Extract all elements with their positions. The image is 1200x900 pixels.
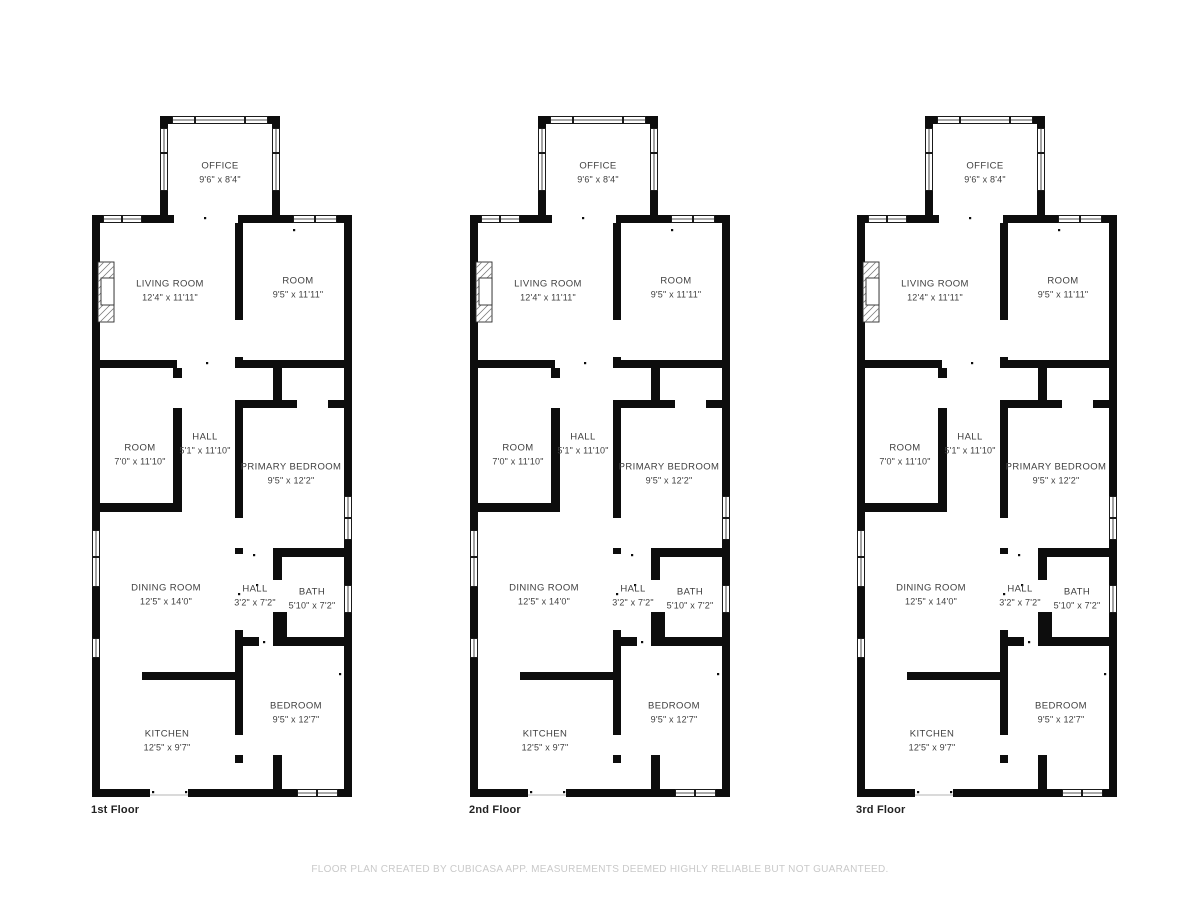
window-left-dining xyxy=(93,531,100,587)
room-name: BATH xyxy=(667,586,714,599)
window-top-left xyxy=(104,216,142,223)
window-office-right xyxy=(651,129,658,191)
window-office-right xyxy=(273,129,280,191)
window-bottom-bedroom xyxy=(1063,790,1103,797)
room-dims: 5'10" x 7'2" xyxy=(289,600,336,613)
room-label-hall-small: HALL 3'2" x 7'2" xyxy=(234,583,276,610)
window-right-primary xyxy=(1110,497,1117,540)
room-dims: 7'0" x 11'10" xyxy=(492,456,543,469)
room-dims: 12'4" x 11'11" xyxy=(136,292,204,305)
window-top-right xyxy=(1059,216,1102,223)
floor-label: 1st Floor xyxy=(91,804,139,816)
room-name: OFFICE xyxy=(964,160,1006,173)
window-top-left xyxy=(482,216,520,223)
room-dims: 5'1" x 11'10" xyxy=(944,445,995,458)
room-dims: 9'5" x 11'11" xyxy=(1038,289,1089,302)
room-name: DINING ROOM xyxy=(131,582,201,595)
room-dims: 9'5" x 12'7" xyxy=(648,714,700,727)
room-name: DINING ROOM xyxy=(509,582,579,595)
window-office-left xyxy=(161,129,168,191)
window-left-dining xyxy=(858,531,865,587)
floorplan-3: OFFICE 9'6" x 8'4" LIVING ROOM 12'4" x 1… xyxy=(850,105,1160,835)
room-label-hall-main: HALL 5'1" x 11'10" xyxy=(944,431,995,458)
window-office-left xyxy=(926,129,933,191)
room-dims: 5'10" x 7'2" xyxy=(1054,600,1101,613)
room-dims: 9'5" x 12'7" xyxy=(270,714,322,727)
room-dims: 3'2" x 7'2" xyxy=(234,597,276,610)
room-name: KITCHEN xyxy=(522,728,569,741)
room-label-kitchen: KITCHEN 12'5" x 9'7" xyxy=(522,728,569,755)
room-name: OFFICE xyxy=(577,160,619,173)
fireplace-chimney xyxy=(863,262,879,322)
room-name: ROOM xyxy=(492,442,543,455)
window-right-bath xyxy=(345,586,352,613)
room-label-living-room: LIVING ROOM 12'4" x 11'11" xyxy=(514,278,582,305)
window-right-bath xyxy=(1110,586,1117,613)
room-dims: 5'1" x 11'10" xyxy=(557,445,608,458)
door-kitchen-exterior xyxy=(528,789,566,797)
room-dims: 9'5" x 11'11" xyxy=(651,289,702,302)
room-name: BEDROOM xyxy=(1035,700,1087,713)
room-label-office: OFFICE 9'6" x 8'4" xyxy=(964,160,1006,187)
room-name: KITCHEN xyxy=(144,728,191,741)
room-label-room-mid: ROOM 7'0" x 11'10" xyxy=(492,442,543,469)
floor-label: 2nd Floor xyxy=(469,804,521,816)
room-label-room-top: ROOM 9'5" x 11'11" xyxy=(1038,275,1089,302)
room-name: ROOM xyxy=(1038,275,1089,288)
room-label-kitchen: KITCHEN 12'5" x 9'7" xyxy=(909,728,956,755)
room-label-hall-main: HALL 5'1" x 11'10" xyxy=(557,431,608,458)
room-dims: 12'4" x 11'11" xyxy=(901,292,969,305)
room-dims: 9'6" x 8'4" xyxy=(964,174,1006,187)
room-label-office: OFFICE 9'6" x 8'4" xyxy=(577,160,619,187)
room-label-primary-bedroom: PRIMARY BEDROOM 9'5" x 12'2" xyxy=(241,461,342,488)
window-office-top xyxy=(173,117,268,124)
window-office-left xyxy=(539,129,546,191)
room-name: ROOM xyxy=(114,442,165,455)
room-name: HALL xyxy=(999,583,1041,596)
window-right-bath xyxy=(723,586,730,613)
room-dims: 12'5" x 14'0" xyxy=(509,596,579,609)
room-name: ROOM xyxy=(273,275,324,288)
room-name: OFFICE xyxy=(199,160,241,173)
room-dims: 9'5" x 12'2" xyxy=(241,475,342,488)
room-name: HALL xyxy=(557,431,608,444)
room-name: HALL xyxy=(612,583,654,596)
room-label-hall-small: HALL 3'2" x 7'2" xyxy=(999,583,1041,610)
window-top-right xyxy=(672,216,715,223)
door-kitchen-exterior xyxy=(915,789,953,797)
room-label-bedroom: BEDROOM 9'5" x 12'7" xyxy=(648,700,700,727)
room-label-primary-bedroom: PRIMARY BEDROOM 9'5" x 12'2" xyxy=(619,461,720,488)
room-label-living-room: LIVING ROOM 12'4" x 11'11" xyxy=(901,278,969,305)
room-name: ROOM xyxy=(879,442,930,455)
window-office-right xyxy=(1038,129,1045,191)
room-name: BEDROOM xyxy=(270,700,322,713)
footer-disclaimer: FLOOR PLAN CREATED BY CUBICASA APP. MEAS… xyxy=(0,864,1200,875)
room-label-room-mid: ROOM 7'0" x 11'10" xyxy=(879,442,930,469)
room-label-hall-main: HALL 5'1" x 11'10" xyxy=(179,431,230,458)
window-top-left xyxy=(869,216,907,223)
room-name: BEDROOM xyxy=(648,700,700,713)
room-dims: 9'6" x 8'4" xyxy=(577,174,619,187)
room-dims: 5'10" x 7'2" xyxy=(667,600,714,613)
room-label-primary-bedroom: PRIMARY BEDROOM 9'5" x 12'2" xyxy=(1006,461,1107,488)
room-label-living-room: LIVING ROOM 12'4" x 11'11" xyxy=(136,278,204,305)
floorplan-2: OFFICE 9'6" x 8'4" LIVING ROOM 12'4" x 1… xyxy=(463,105,773,835)
room-label-bath: BATH 5'10" x 7'2" xyxy=(1054,586,1101,613)
fireplace-chimney xyxy=(476,262,492,322)
window-left-dining xyxy=(471,531,478,587)
room-label-dining-room: DINING ROOM 12'5" x 14'0" xyxy=(131,582,201,609)
room-name: LIVING ROOM xyxy=(136,278,204,291)
room-dims: 12'4" x 11'11" xyxy=(514,292,582,305)
floorplan-1: OFFICE 9'6" x 8'4" LIVING ROOM 12'4" x 1… xyxy=(85,105,395,835)
room-label-kitchen: KITCHEN 12'5" x 9'7" xyxy=(144,728,191,755)
window-top-right xyxy=(294,216,337,223)
window-bottom-bedroom xyxy=(676,790,716,797)
room-name: BATH xyxy=(1054,586,1101,599)
room-name: ROOM xyxy=(651,275,702,288)
room-dims: 9'5" x 12'2" xyxy=(1006,475,1107,488)
room-dims: 12'5" x 14'0" xyxy=(896,596,966,609)
fireplace-chimney xyxy=(98,262,114,322)
window-office-top xyxy=(551,117,646,124)
window-right-primary xyxy=(723,497,730,540)
room-label-room-top: ROOM 9'5" x 11'11" xyxy=(651,275,702,302)
room-dims: 12'5" x 9'7" xyxy=(144,742,191,755)
room-dims: 9'5" x 12'2" xyxy=(619,475,720,488)
door-kitchen-exterior xyxy=(150,789,188,797)
room-dims: 3'2" x 7'2" xyxy=(612,597,654,610)
room-dims: 7'0" x 11'10" xyxy=(879,456,930,469)
room-name: HALL xyxy=(944,431,995,444)
room-dims: 3'2" x 7'2" xyxy=(999,597,1041,610)
room-name: BATH xyxy=(289,586,336,599)
room-label-bath: BATH 5'10" x 7'2" xyxy=(667,586,714,613)
room-label-room-top: ROOM 9'5" x 11'11" xyxy=(273,275,324,302)
room-dims: 12'5" x 14'0" xyxy=(131,596,201,609)
room-label-bath: BATH 5'10" x 7'2" xyxy=(289,586,336,613)
window-left-kitchen xyxy=(93,639,100,658)
window-right-primary xyxy=(345,497,352,540)
room-name: PRIMARY BEDROOM xyxy=(241,461,342,474)
window-left-kitchen xyxy=(471,639,478,658)
window-office-top xyxy=(938,117,1033,124)
room-dims: 9'5" x 12'7" xyxy=(1035,714,1087,727)
room-name: DINING ROOM xyxy=(896,582,966,595)
window-left-kitchen xyxy=(858,639,865,658)
room-label-hall-small: HALL 3'2" x 7'2" xyxy=(612,583,654,610)
floor-label: 3rd Floor xyxy=(856,804,905,816)
room-dims: 7'0" x 11'10" xyxy=(114,456,165,469)
room-dims: 9'6" x 8'4" xyxy=(199,174,241,187)
room-label-bedroom: BEDROOM 9'5" x 12'7" xyxy=(1035,700,1087,727)
room-dims: 12'5" x 9'7" xyxy=(909,742,956,755)
room-dims: 5'1" x 11'10" xyxy=(179,445,230,458)
room-name: PRIMARY BEDROOM xyxy=(1006,461,1107,474)
canvas: OFFICE 9'6" x 8'4" LIVING ROOM 12'4" x 1… xyxy=(0,0,1200,900)
room-name: LIVING ROOM xyxy=(514,278,582,291)
room-dims: 12'5" x 9'7" xyxy=(522,742,569,755)
room-name: PRIMARY BEDROOM xyxy=(619,461,720,474)
room-name: HALL xyxy=(179,431,230,444)
window-bottom-bedroom xyxy=(298,790,338,797)
room-label-bedroom: BEDROOM 9'5" x 12'7" xyxy=(270,700,322,727)
room-label-office: OFFICE 9'6" x 8'4" xyxy=(199,160,241,187)
floorplans-row: OFFICE 9'6" x 8'4" LIVING ROOM 12'4" x 1… xyxy=(0,0,1200,900)
room-label-room-mid: ROOM 7'0" x 11'10" xyxy=(114,442,165,469)
room-name: LIVING ROOM xyxy=(901,278,969,291)
room-label-dining-room: DINING ROOM 12'5" x 14'0" xyxy=(896,582,966,609)
room-name: KITCHEN xyxy=(909,728,956,741)
room-dims: 9'5" x 11'11" xyxy=(273,289,324,302)
room-name: HALL xyxy=(234,583,276,596)
room-label-dining-room: DINING ROOM 12'5" x 14'0" xyxy=(509,582,579,609)
